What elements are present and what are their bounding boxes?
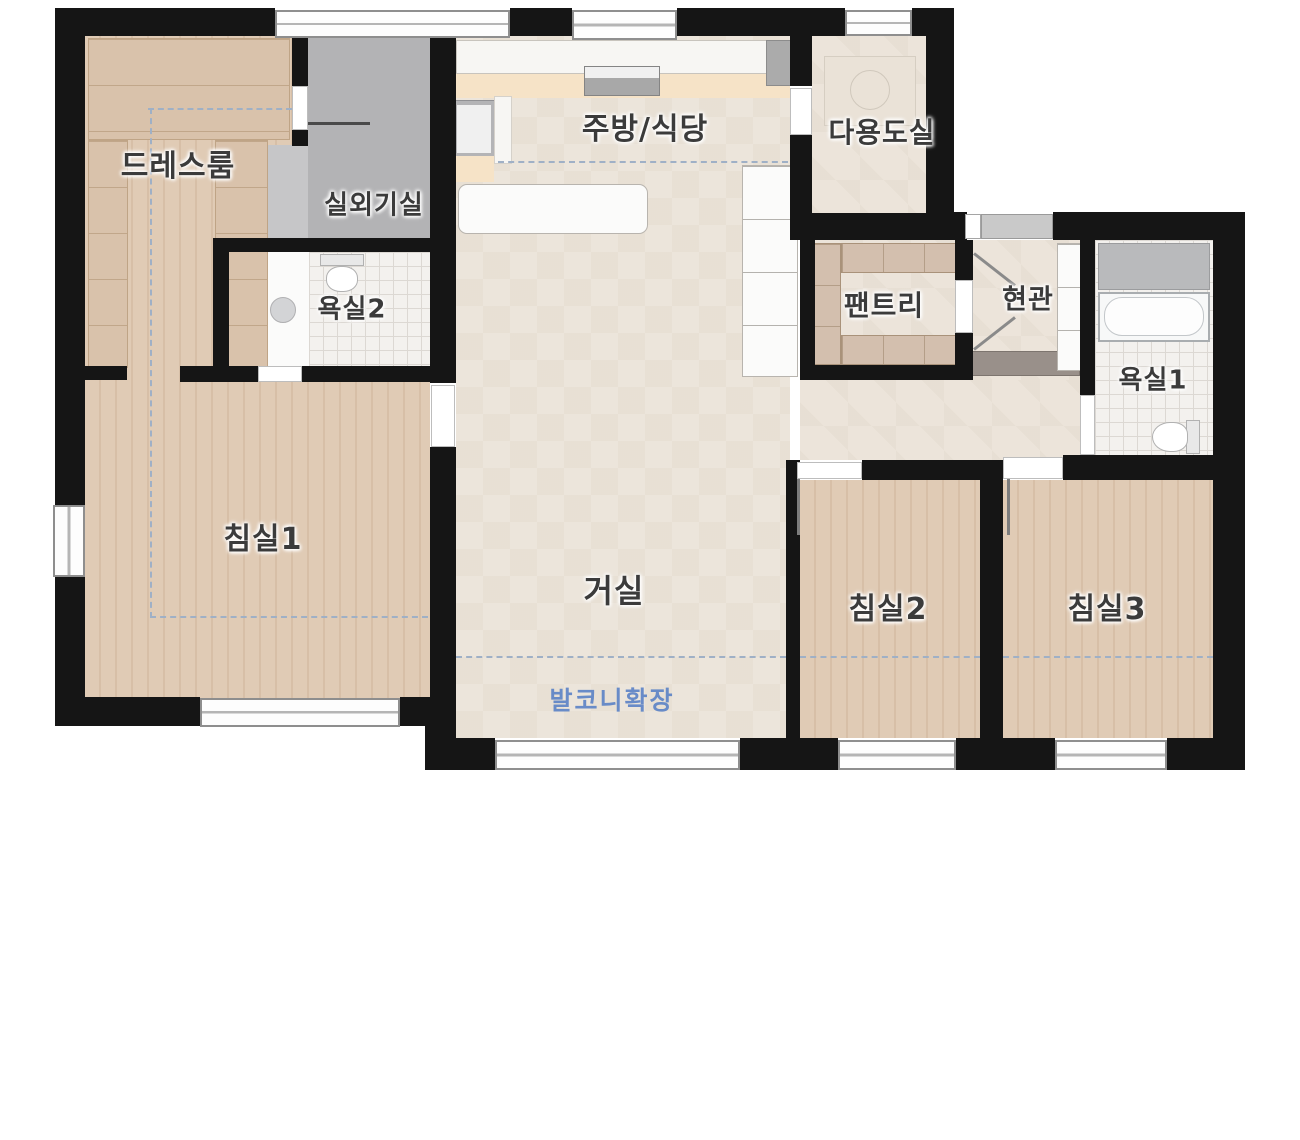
kitchen-stove <box>584 66 660 96</box>
door-bathroom1 <box>1080 395 1095 455</box>
room-label-pantry: 팬트리 <box>844 284 924 324</box>
room-label-bedroom-1: 침실1 <box>223 514 302 558</box>
bathroom-2-toilet-tank <box>320 254 364 266</box>
hallway-floor <box>800 378 1080 460</box>
room-label-outdoor-unit-room: 실외기실 <box>324 185 424 222</box>
window-bottom-bedroom2 <box>838 740 956 770</box>
room-label-bedroom-3: 침실3 <box>1067 584 1146 628</box>
kitchen-counter-cream <box>452 156 494 182</box>
wall-dressroom-right-a <box>292 36 308 86</box>
window-top-dressroom <box>275 10 510 38</box>
bathroom-2-basin <box>270 297 296 323</box>
door-bathroom2 <box>258 366 302 382</box>
room-label-dress-room: 드레스룸 <box>121 141 235 185</box>
window-left-bedroom1 <box>53 505 85 577</box>
dashed-line-bedroom1 <box>150 616 428 618</box>
wall-utility-bottom <box>800 213 926 240</box>
bathroom-1-shower <box>1098 243 1210 290</box>
wall-bath2-bottom-b <box>302 366 455 382</box>
window-bottom-living <box>495 740 740 770</box>
window-bottom-bedroom3 <box>1055 740 1167 770</box>
bathroom-1-toilet-tank <box>1186 420 1200 454</box>
front-door-panel <box>981 214 1053 239</box>
wall-bottom-b <box>740 738 838 770</box>
kitchen-fridge-front <box>457 105 491 153</box>
utility-washer-drum <box>850 70 890 110</box>
door-bedroom3-leaf <box>1007 479 1010 535</box>
dashed-line-kitchen <box>498 161 788 163</box>
wall-pantry-right-b <box>955 333 973 380</box>
wall-bed2-top-b <box>862 460 980 480</box>
wall-kitchen-right-a <box>790 36 812 86</box>
wall-left-upper <box>55 8 85 505</box>
bathroom-1-tub-inner <box>1104 297 1204 336</box>
wall-right <box>1213 212 1245 770</box>
dashed-line-dressroom-h <box>148 108 292 110</box>
wardrobe-top <box>88 38 290 140</box>
window-top-utility <box>845 10 912 36</box>
door-bedroom1 <box>431 385 455 447</box>
wall-top-c <box>677 8 845 36</box>
dashed-line-bedroom2 <box>800 656 980 658</box>
room-label-bathroom-2: 욕실2 <box>318 289 387 326</box>
door-bedroom2-leaf <box>797 479 800 535</box>
front-door-frame <box>965 214 981 239</box>
room-label-bathroom-1: 욕실1 <box>1119 360 1188 397</box>
wall-dressroom-right-b <box>292 130 308 146</box>
outdoor-unit-room-floor-ext <box>268 145 308 240</box>
wall-bedroom1-bottom-a <box>55 697 200 726</box>
room-label-living-room: 거실 <box>584 566 645 612</box>
door-pantry <box>955 280 973 333</box>
wall-central-upper <box>430 36 456 383</box>
wall-bath2-bottom-a <box>180 366 260 382</box>
wall-bed1-stub <box>85 366 127 380</box>
wall-top-b <box>510 8 572 36</box>
wall-pantry-left <box>800 240 815 380</box>
wall-bed3-top <box>1063 455 1213 480</box>
window-bottom-bedroom1 <box>200 698 400 727</box>
balcony-extension-label: 발코니확장 <box>549 681 674 717</box>
wall-bath2-top <box>213 238 430 252</box>
door-kitchen-utility <box>790 88 812 135</box>
wall-top-a <box>55 8 275 36</box>
pantry-shelf-top <box>841 243 963 273</box>
door-outdoor-unit-room <box>292 86 308 130</box>
door-bedroom3 <box>1003 457 1063 479</box>
pantry-shelf-bottom <box>841 335 963 365</box>
wall-entrance-bath1-divider <box>1080 240 1095 395</box>
floor-plan: 드레스룸 실외기실 주방/식당 다용도실 욕실2 팬트리 현관 욕실1 침실1 … <box>0 0 1300 1140</box>
dashed-line-living <box>456 656 786 658</box>
wall-pantry-bottom <box>800 365 965 380</box>
dashed-line-bedroom3 <box>1003 656 1213 658</box>
wall-bath2-left <box>213 238 229 368</box>
door-bedroom2 <box>797 462 862 479</box>
wall-pantry-right-a <box>955 240 973 280</box>
door-outdoor-unit-swing <box>308 122 370 125</box>
room-label-bedroom-2: 침실2 <box>848 584 927 628</box>
window-top-kitchen <box>572 10 677 40</box>
wall-central-lower <box>430 447 456 738</box>
wall-bottom-c <box>956 738 1055 770</box>
kitchen-counter-return <box>494 96 512 164</box>
room-label-entrance: 현관 <box>1002 278 1054 317</box>
wall-bed2-bed3-divider <box>980 460 1003 770</box>
bathroom-1-toilet-bowl <box>1152 422 1188 452</box>
room-label-kitchen-dining: 주방/식당 <box>582 104 708 148</box>
kitchen-island <box>458 184 648 234</box>
room-label-utility-room: 다용도실 <box>828 111 935 151</box>
wall-bottom-d <box>1167 738 1245 770</box>
